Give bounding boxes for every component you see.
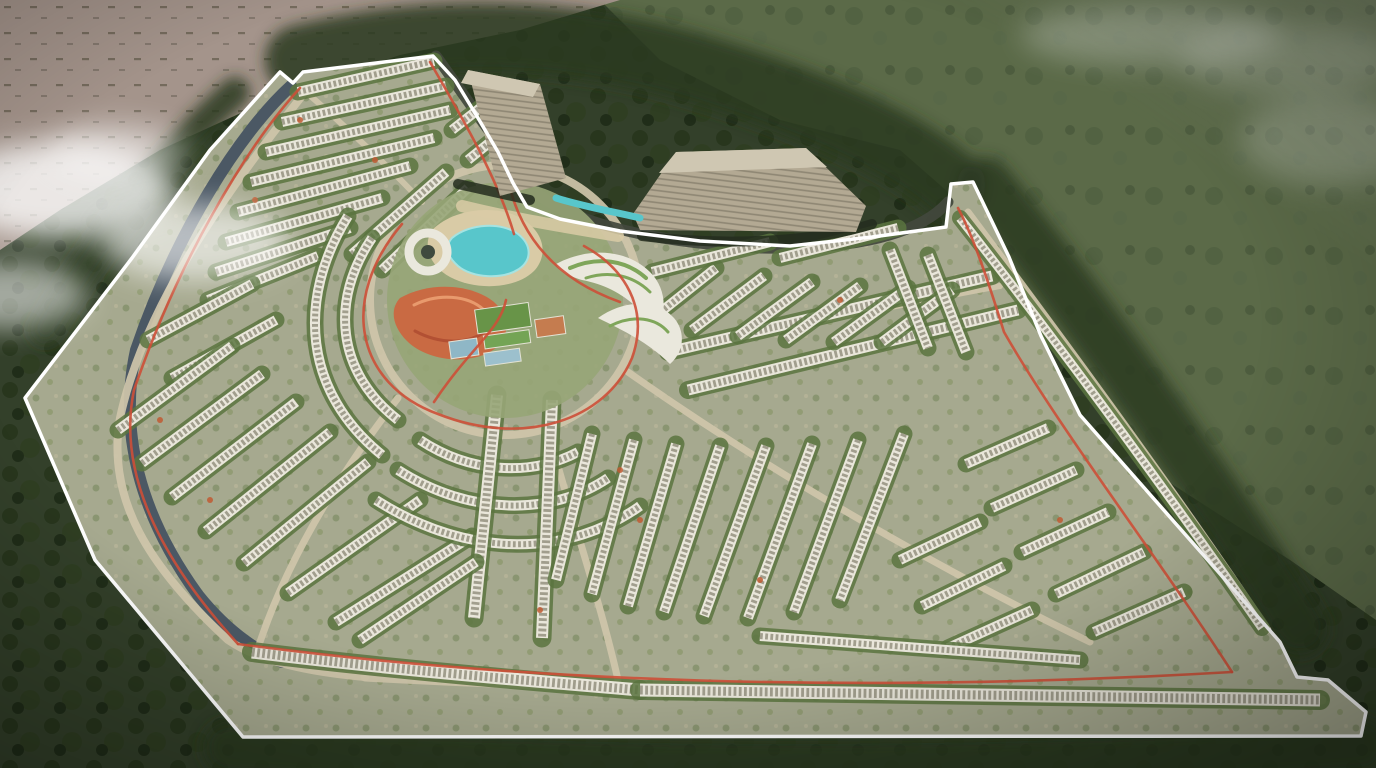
vignette [0,0,1376,768]
aerial-masterplan-render [0,0,1376,768]
render-canvas [0,0,1376,768]
